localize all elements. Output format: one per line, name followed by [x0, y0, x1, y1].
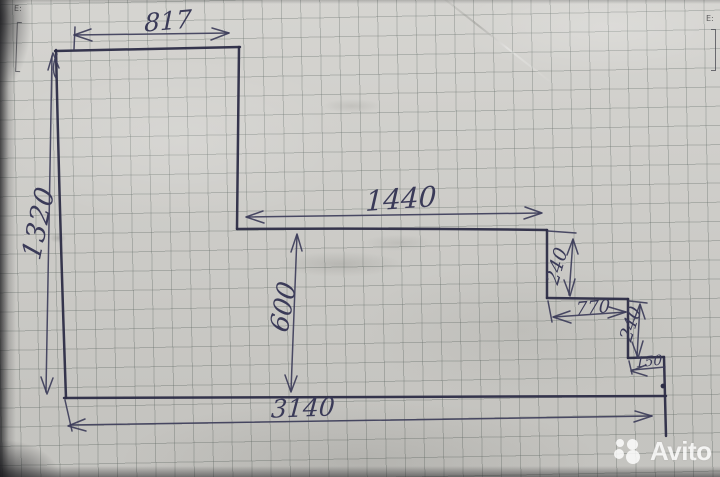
margin-bracket-top-right	[711, 29, 716, 71]
ink-dot	[661, 384, 666, 389]
dim-label-817: 817	[144, 4, 192, 37]
dim-label-240-upper: 240	[542, 244, 573, 287]
dim-label-240-lower: 240	[616, 303, 646, 344]
dim-label-1440: 1440	[365, 180, 437, 218]
paper-stains	[0, 0, 720, 477]
photo-edge-bottom	[0, 466, 720, 477]
dim-label-770: 770	[576, 296, 611, 320]
dim-label-150: 150	[636, 353, 663, 372]
ink-drawing	[0, 0, 720, 477]
photo-corner-top-left	[0, 0, 720, 477]
paper-crease	[436, 0, 555, 86]
graph-paper-grid	[0, 0, 720, 477]
dim-label-1320: 1320	[17, 183, 62, 264]
graph-paper-photo: 817 1320 1440 600 240 770 240 150 3140 E…	[0, 0, 720, 477]
avito-watermark-text: Avito	[650, 436, 712, 467]
dim-label-3140: 3140	[270, 392, 336, 423]
dim-label-600: 600	[265, 278, 303, 335]
photo-corner-bottom-left	[0, 0, 720, 477]
shape-outline	[55, 47, 666, 436]
avito-logo-icon	[610, 437, 646, 467]
photo-edge-top	[0, 0, 720, 4]
margin-bracket-top-left	[15, 22, 22, 72]
dim-3140	[65, 400, 652, 431]
photo-edge-left	[0, 0, 16, 477]
avito-watermark: Avito	[610, 436, 712, 467]
margin-mark-top-right: E:	[706, 14, 714, 23]
